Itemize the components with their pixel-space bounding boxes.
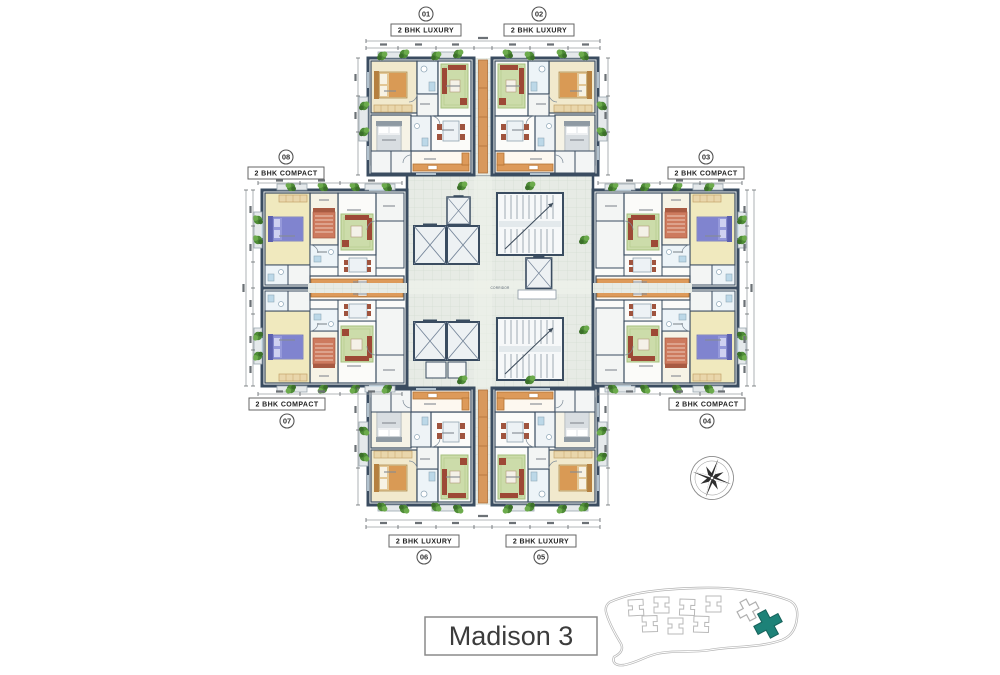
unit-label-07: 2 BHK COMPACT 07 (249, 398, 325, 428)
compass-rose-icon (685, 451, 739, 505)
floor-plan-sheet: CORRIDOR 01 2 BHK LUXURY 02 2 BHK LUXURY… (0, 0, 1000, 675)
unit-label-06: 2 BHK LUXURY 06 (389, 535, 459, 564)
unit-type: 2 BHK LUXURY (398, 28, 454, 35)
site-key-map (606, 588, 797, 665)
unit-type: 2 BHK LUXURY (396, 539, 452, 546)
unit-number: 07 (283, 417, 291, 426)
wing-right (593, 182, 747, 393)
service-elevator (526, 256, 552, 288)
unit-number: 08 (282, 153, 290, 162)
unit-label-02: 02 2 BHK LUXURY (504, 7, 574, 36)
title-block: Madison 3 (425, 617, 597, 655)
unit-label-08: 08 2 BHK COMPACT (248, 150, 324, 179)
unit-type: 2 BHK LUXURY (511, 28, 567, 35)
lift-lobby-strip (518, 290, 556, 299)
unit-number: 06 (420, 553, 428, 562)
central-core: CORRIDOR (407, 175, 593, 390)
unit-type: 2 BHK COMPACT (254, 171, 317, 178)
unit-type: 2 BHK COMPACT (675, 402, 738, 409)
unit-number: 04 (703, 417, 712, 426)
staircase-top (497, 193, 563, 255)
unit-type: 2 BHK LUXURY (513, 539, 569, 546)
staircase-bottom (497, 318, 563, 380)
corridor-label: CORRIDOR (491, 286, 510, 290)
unit-number: 05 (537, 553, 545, 562)
unit-type: 2 BHK COMPACT (255, 402, 318, 409)
unit-label-03: 03 2 BHK COMPACT (668, 150, 744, 179)
unit-type: 2 BHK COMPACT (674, 171, 737, 178)
unit-label-05: 2 BHK LUXURY 05 (506, 535, 576, 564)
wing-left (253, 182, 407, 393)
unit-label-01: 01 2 BHK LUXURY (391, 7, 461, 36)
page-title: Madison 3 (449, 621, 574, 651)
floor-plan-drawing: CORRIDOR 01 2 BHK LUXURY 02 2 BHK LUXURY… (0, 0, 1000, 675)
wing-bottom (359, 388, 607, 514)
wing-top (359, 49, 607, 175)
unit-number: 02 (535, 10, 543, 19)
unit-number: 03 (702, 153, 710, 162)
unit-number: 01 (422, 10, 430, 19)
unit-label-04: 2 BHK COMPACT 04 (669, 398, 745, 428)
